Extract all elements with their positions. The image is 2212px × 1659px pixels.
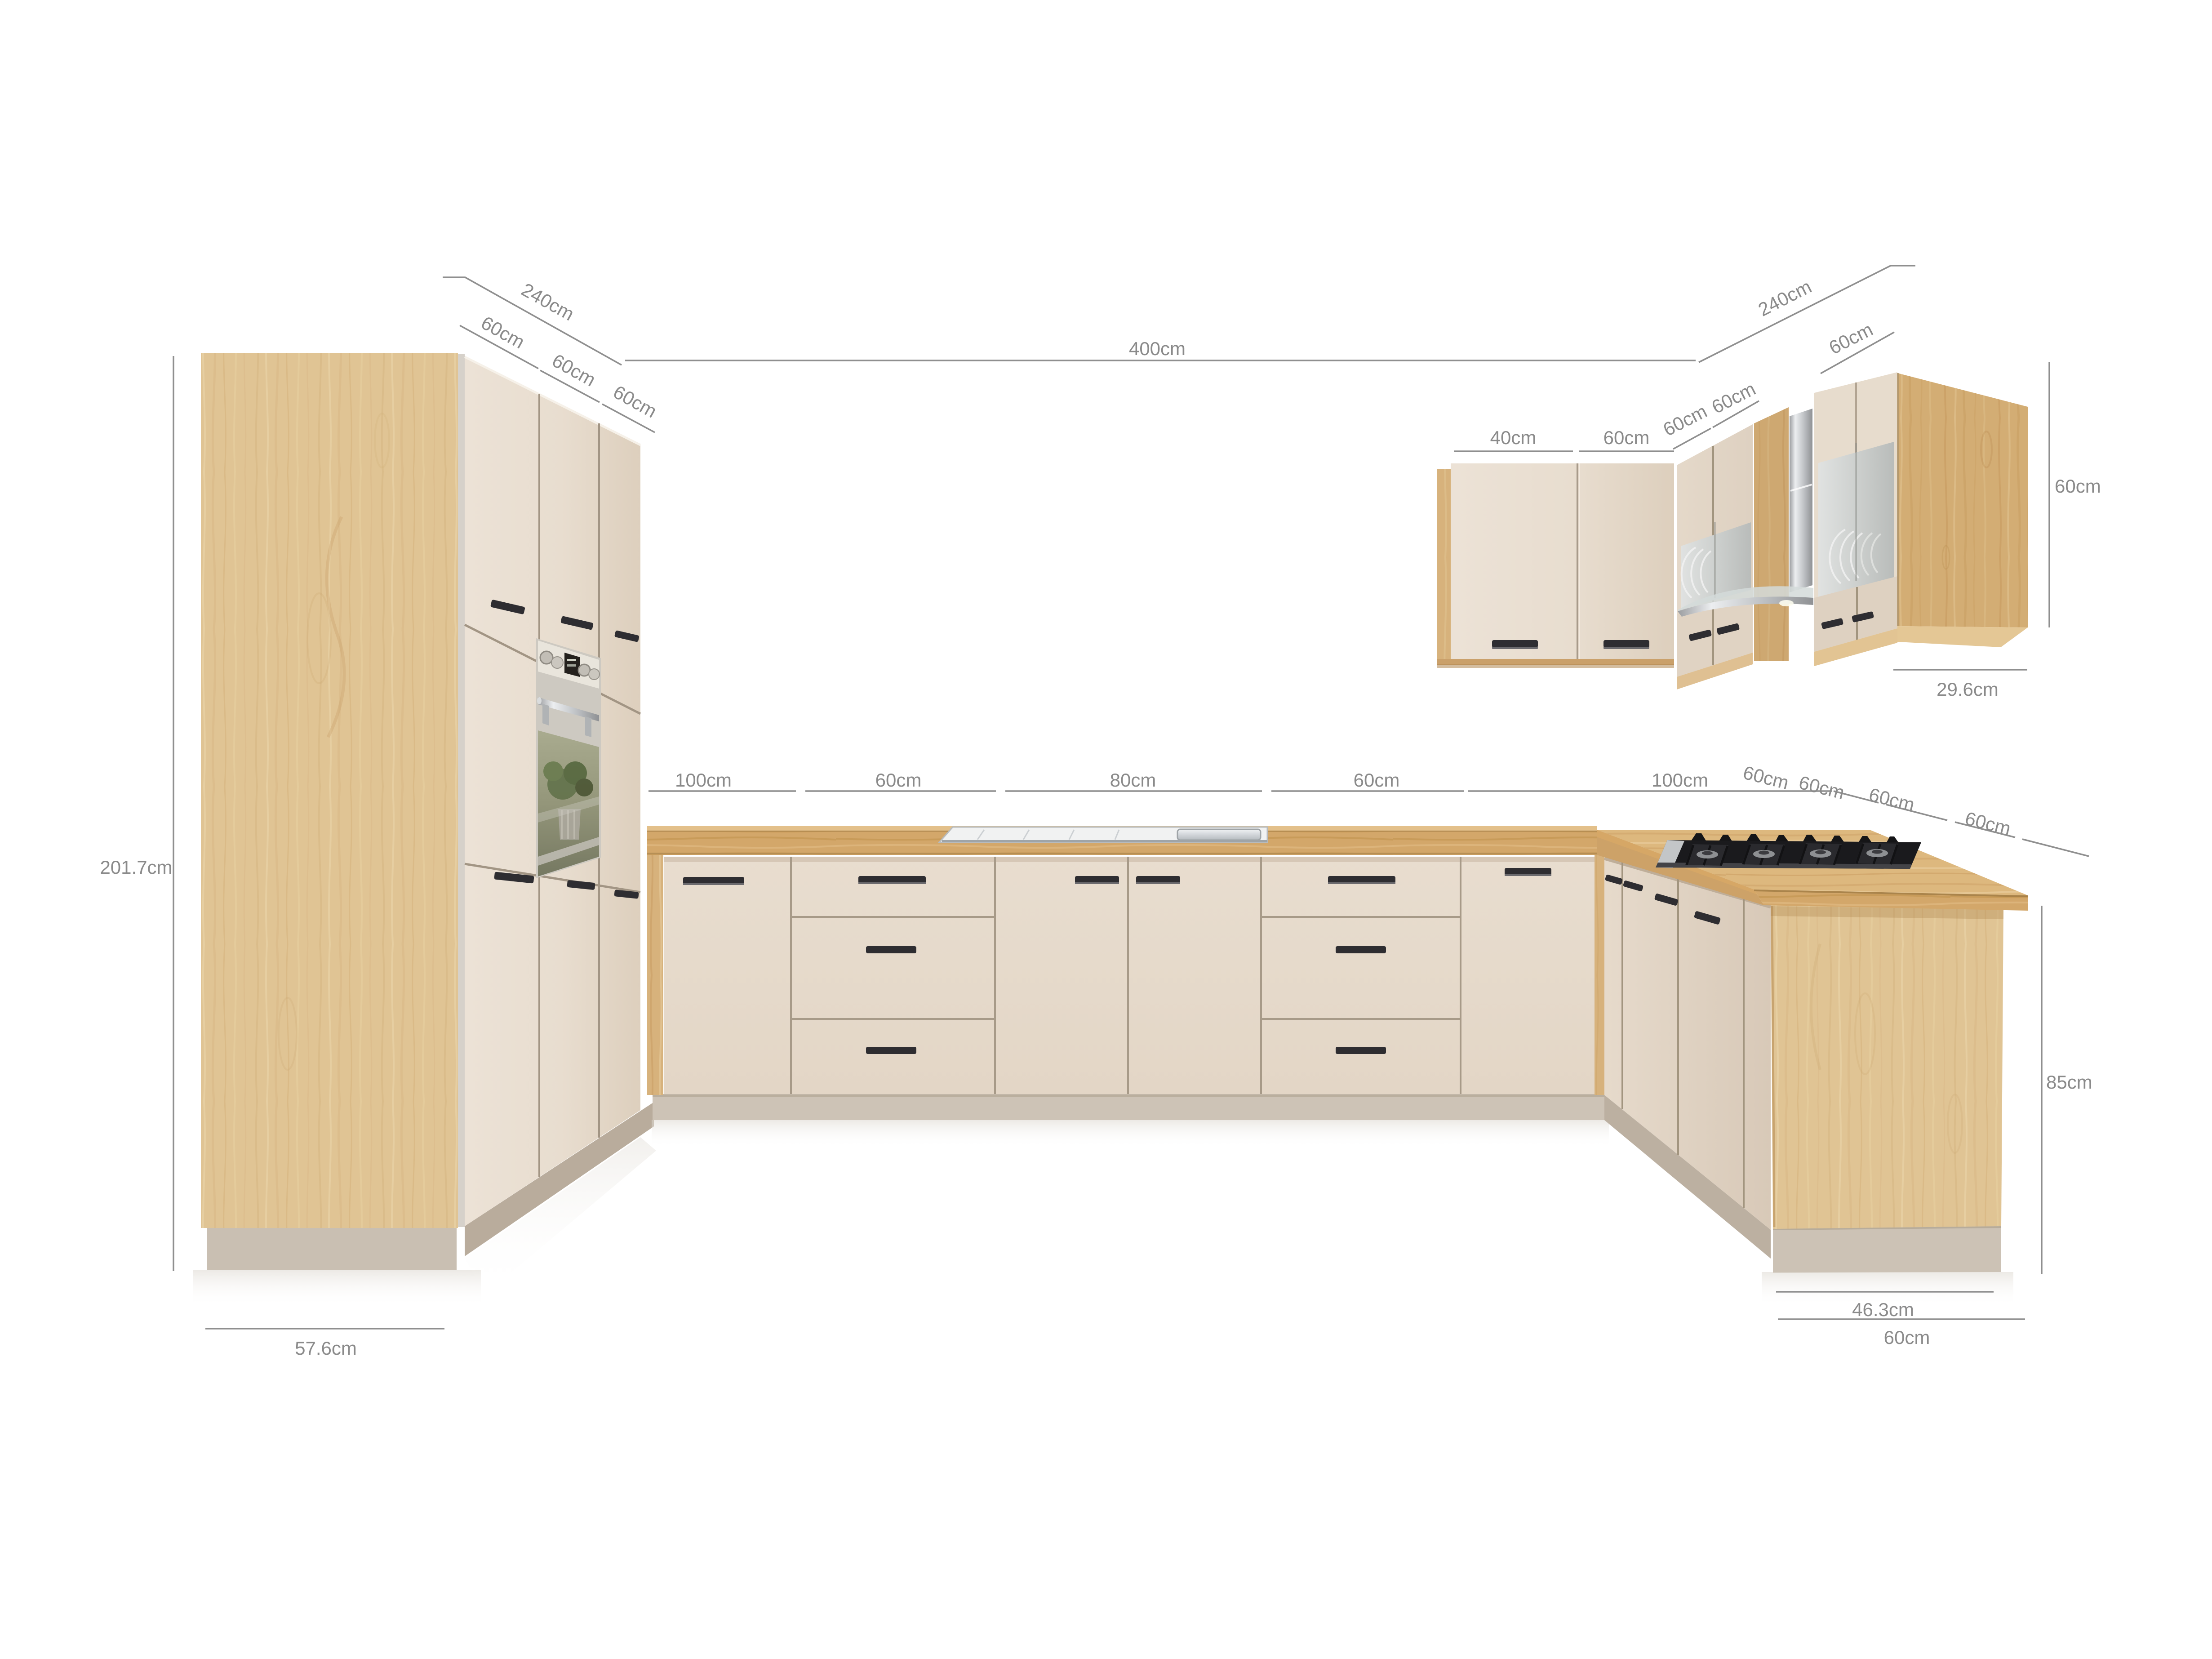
- svg-text:57.6cm: 57.6cm: [295, 1338, 357, 1359]
- svg-text:80cm: 80cm: [1110, 769, 1156, 791]
- svg-text:29.6cm: 29.6cm: [1937, 679, 1999, 700]
- svg-text:60cm: 60cm: [875, 769, 922, 791]
- svg-text:400cm: 400cm: [1129, 338, 1186, 359]
- svg-text:60cm: 60cm: [1603, 427, 1650, 448]
- svg-text:100cm: 100cm: [1652, 769, 1708, 791]
- svg-text:46.3cm: 46.3cm: [1852, 1299, 1914, 1320]
- svg-text:201.7cm: 201.7cm: [100, 857, 172, 878]
- svg-text:60cm: 60cm: [1884, 1327, 1930, 1348]
- svg-text:100cm: 100cm: [675, 769, 732, 791]
- svg-text:60cm: 60cm: [1354, 769, 1400, 791]
- svg-text:85cm: 85cm: [2046, 1072, 2092, 1093]
- svg-text:60cm: 60cm: [2055, 476, 2101, 497]
- svg-text:40cm: 40cm: [1490, 427, 1537, 448]
